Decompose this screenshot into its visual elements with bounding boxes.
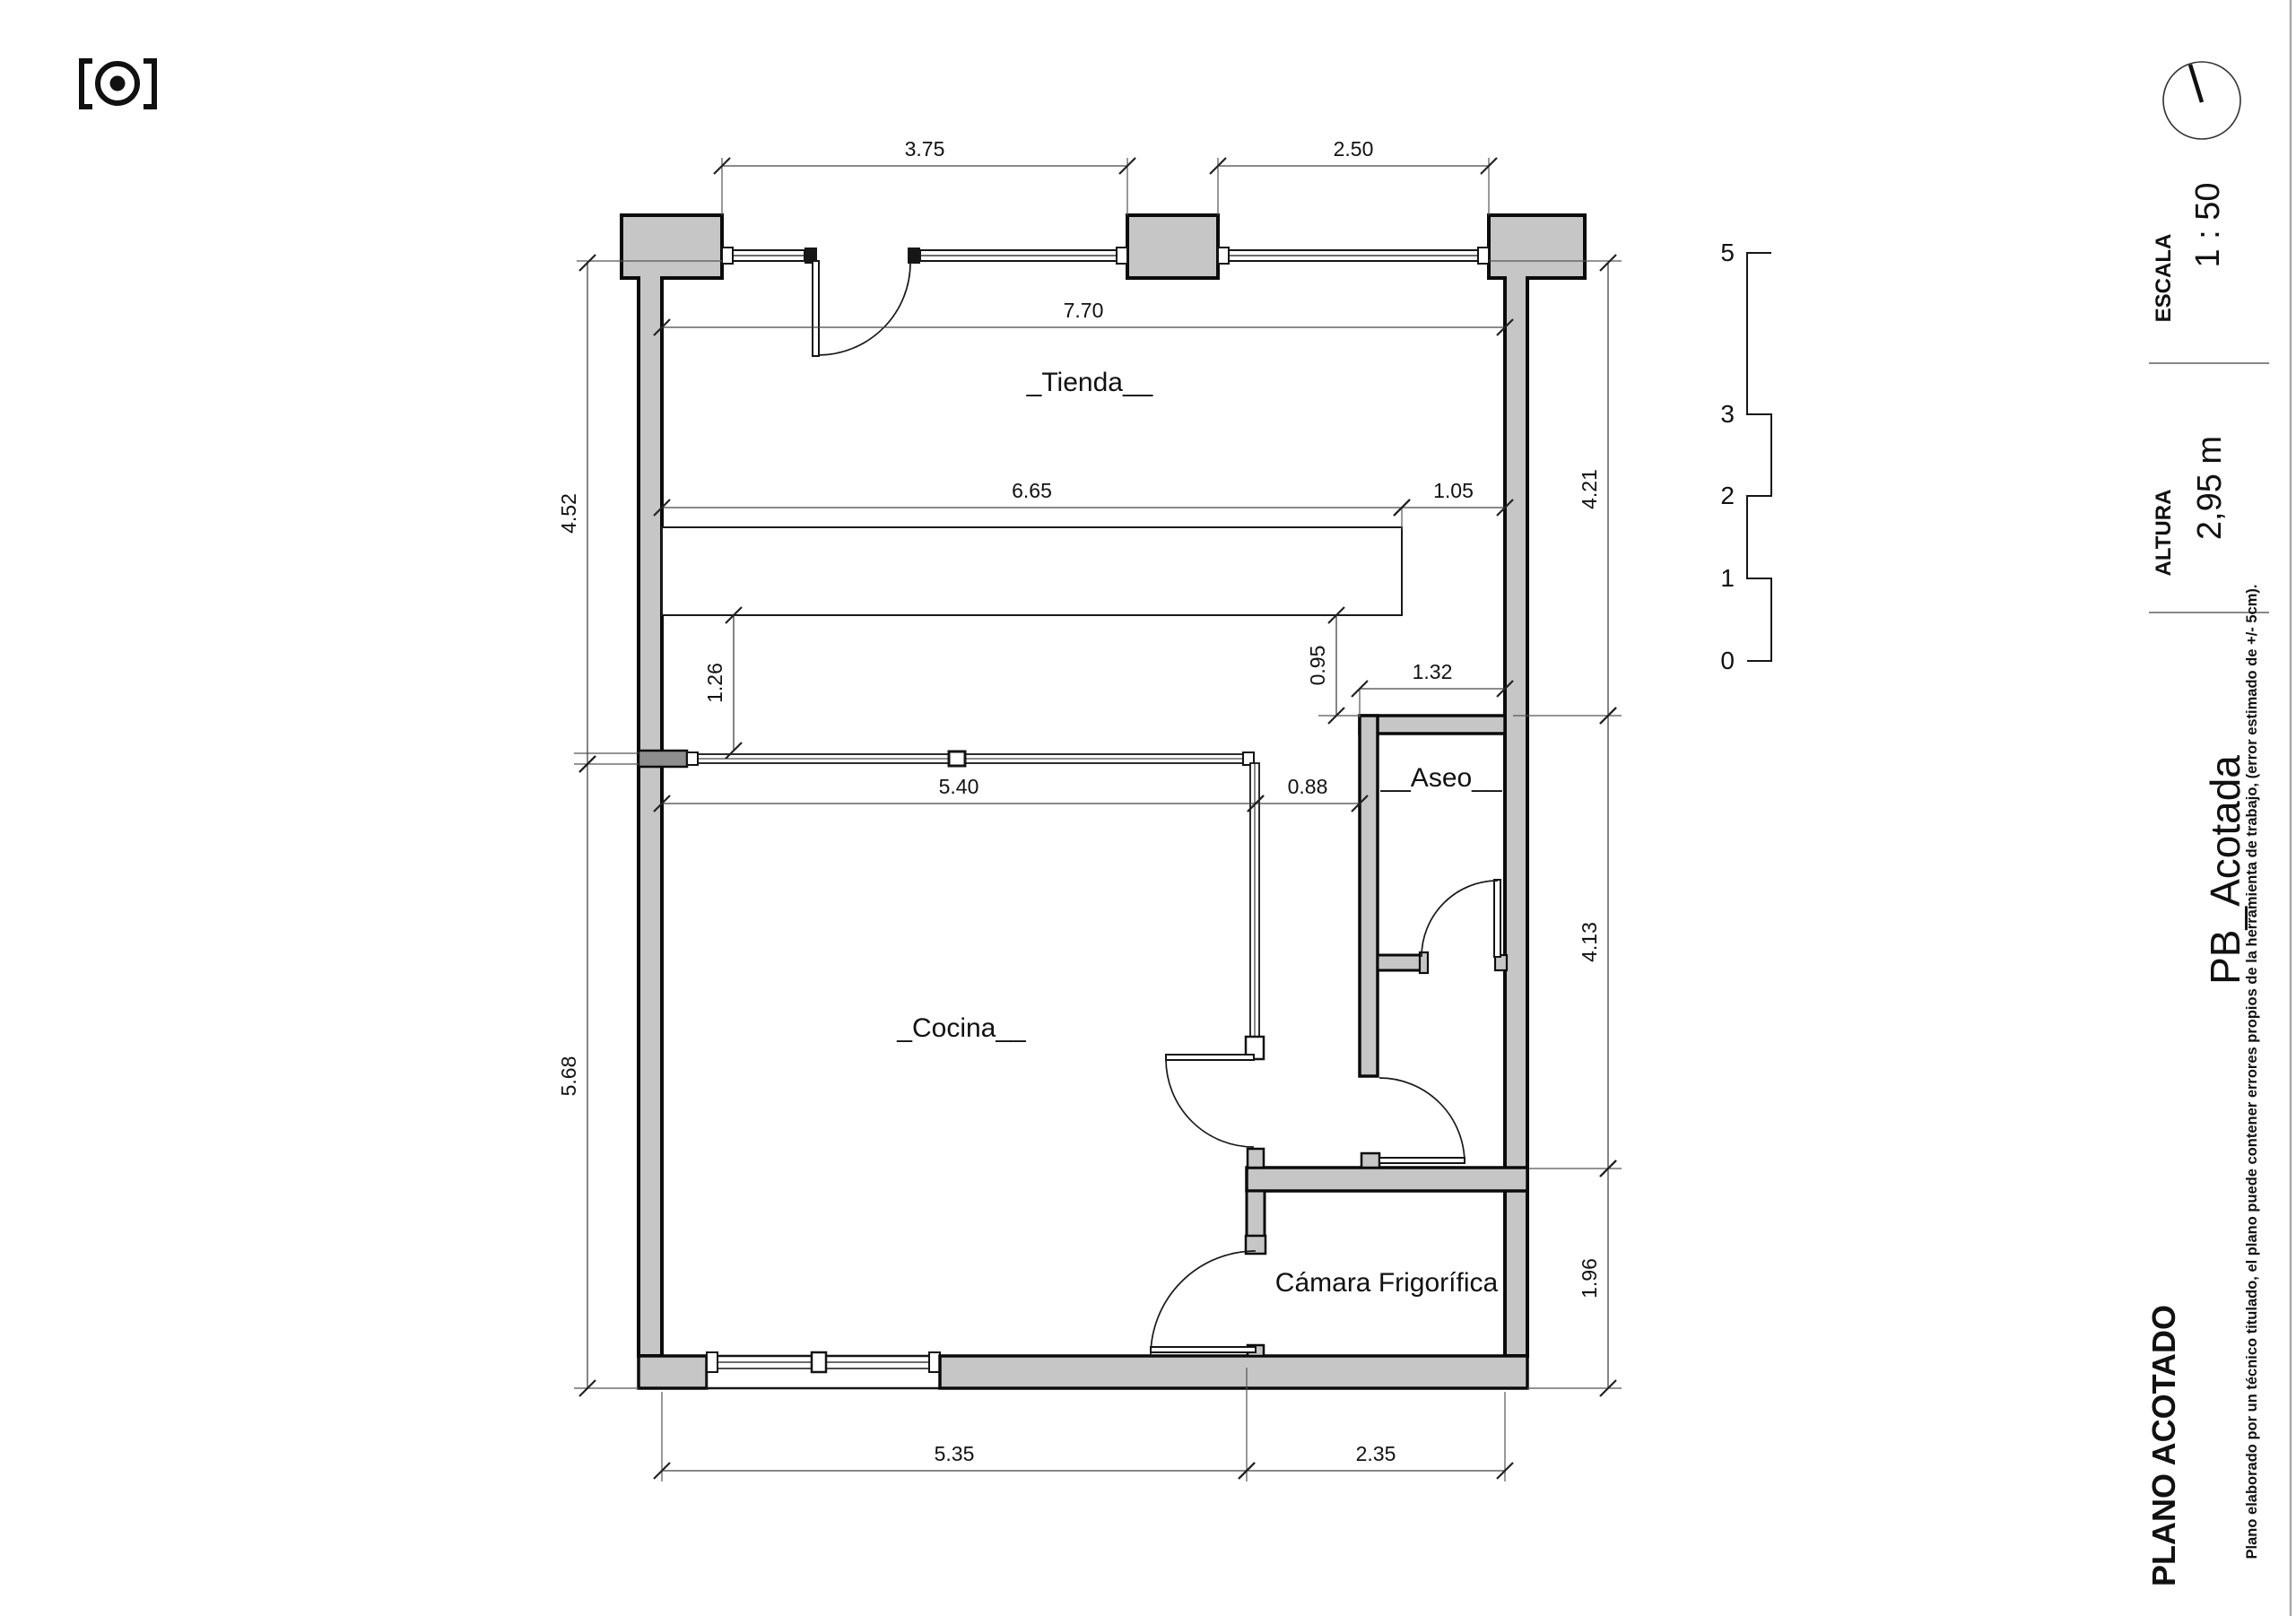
dimension-value: 1.05 [1433,479,1474,502]
altura-label: ALTURA [2152,490,2176,577]
north-indicator-icon [2163,62,2240,139]
dimension-3.75: 3.75 [714,137,1135,174]
dimension-7.70: 7.70 [654,299,1513,335]
door-vestibule [1379,1078,1465,1163]
room-label-cocina: _Cocina__ [896,1013,1027,1043]
dimension-1.96: 1.96 [1578,1160,1616,1396]
door-aseo [1422,880,1500,957]
dimension-0.95: 0.95 [1306,607,1344,724]
room-label-aseo: __Aseo__ [1379,763,1502,793]
dimension-value: 5.35 [935,1442,975,1465]
dimension-value: 7.70 [1064,299,1104,322]
scale-bar-number: 3 [1720,400,1735,428]
dimension-value: 0.88 [1288,775,1328,798]
escala-value: 1 : 50 [2189,182,2227,267]
dimension-1.32: 1.32 [1352,660,1513,697]
dimension-value: 6.65 [1012,479,1052,502]
doc-type: PLANO ACOTADO [2145,1305,2182,1586]
dimension-value: 4.52 [557,493,580,534]
counter-fixture [662,527,1402,615]
dimension-2.50: 2.50 [1210,137,1497,174]
dimension-1.26: 1.26 [703,607,742,759]
dimension-4.13: 4.13 [1578,708,1616,1177]
title-block: ESCALA 1 : 50 ALTURA 2,95 m PB_Acotada P… [2145,0,2291,1616]
altura-value: 2,95 m [2191,436,2229,540]
dimension-value: 5.68 [557,1056,580,1097]
dimension-5.68: 5.68 [557,756,596,1396]
dimension-1.05: 1.05 [1394,479,1513,516]
door-camara [1151,1251,1256,1356]
graphic-scale-bar: 53210 [1720,239,1771,674]
dimension-0.88: 0.88 [1248,775,1368,812]
window-bands [722,248,1489,264]
room-label-tienda: _Tienda__ [1026,368,1154,397]
escala-label: ESCALA [2152,234,2176,323]
scale-bar-number: 2 [1720,482,1735,509]
dimension-value: 0.95 [1306,646,1329,686]
floor-plan-sheet: 3.752.507.706.651.051.325.400.885.352.35… [0,0,2296,1616]
dimension-value: 5.40 [939,775,979,798]
scale-bar-number: 1 [1720,564,1735,592]
dimension-5.40: 5.40 [654,775,1264,812]
room-label-camara: Cámara Frigorífica [1275,1268,1499,1298]
scale-bar-number: 5 [1720,239,1735,266]
disclaimer-note: Plano elaborado por un técnico titulado,… [2244,585,2260,1560]
door-cocina-vestibule [1166,1055,1254,1147]
dimension-value: 1.96 [1578,1258,1601,1299]
dimension-value: 2.35 [1356,1442,1396,1465]
door-entrance [813,261,910,356]
plan-name: PB_Acotada [2202,755,2248,985]
dimension-value: 1.32 [1413,660,1453,683]
dimension-4.52: 4.52 [557,255,596,772]
dimension-value: 1.26 [703,663,726,703]
dimension-value: 4.21 [1578,469,1601,509]
dimension-4.21: 4.21 [1578,255,1616,724]
dimension-value: 3.75 [905,137,945,161]
target-logo-icon [82,61,154,107]
dimension-6.65: 6.65 [654,479,1410,516]
dimension-value: 2.50 [1334,137,1374,161]
dimension-5.35: 5.35 [654,1442,1255,1479]
dimension-value: 4.13 [1578,922,1601,962]
dimension-2.35: 2.35 [1239,1442,1513,1479]
scale-bar-number: 0 [1720,647,1735,674]
